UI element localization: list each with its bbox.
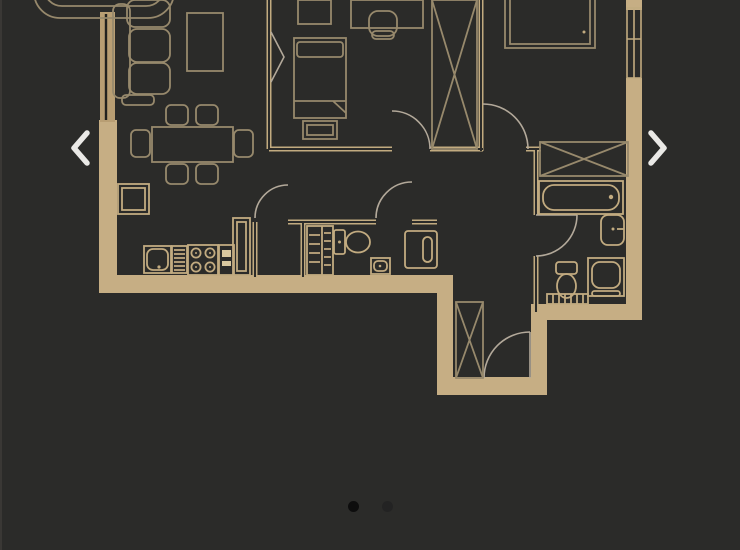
pagination-dot-2[interactable] (382, 501, 393, 512)
outer-walls (99, 0, 642, 395)
kitchen (118, 184, 250, 275)
living-room (113, 0, 253, 184)
oven-unit (219, 245, 234, 275)
corner-counter (233, 218, 250, 275)
image-carousel (0, 0, 740, 550)
chevron-left-icon (69, 128, 93, 168)
bench (303, 121, 337, 139)
desk (351, 0, 423, 28)
pagination-dot-1[interactable] (348, 501, 359, 512)
door-arcs (255, 32, 577, 378)
entry-hall (456, 302, 483, 378)
shower-cabinet (588, 258, 624, 296)
closet-x (540, 142, 628, 176)
coffee-table (187, 13, 223, 71)
kitchen-sink (144, 246, 171, 273)
bed-1 (294, 38, 346, 118)
radiator (547, 294, 588, 304)
washing-machine (405, 231, 437, 268)
carousel-prev-button[interactable] (69, 128, 93, 168)
headboard-shelf (298, 0, 331, 24)
screen-edge-strip (0, 0, 2, 550)
bathtub (539, 181, 623, 214)
wc-laundry (307, 226, 437, 275)
toilet-wc (334, 230, 370, 254)
right-wall-window (627, 8, 641, 78)
entry-wardrobe-x (456, 302, 483, 378)
small-washbasin (371, 258, 390, 274)
dining-set (131, 105, 253, 184)
dish-rack (172, 246, 187, 273)
chevron-right-icon (645, 128, 669, 168)
wardrobe-x (432, 0, 477, 149)
desk-chair (369, 11, 397, 39)
stove (188, 245, 218, 275)
shelving (307, 226, 333, 275)
washbasin (601, 215, 624, 245)
toilet-bathroom (556, 262, 577, 298)
carousel-pagination (0, 501, 740, 512)
sofa (113, 0, 170, 105)
bed-2 (505, 0, 595, 48)
carousel-next-button[interactable] (645, 128, 669, 168)
bathroom (539, 181, 624, 304)
apartment-floor-plan (0, 0, 740, 550)
bedroom-2 (505, 0, 628, 176)
bedroom-1 (294, 0, 477, 149)
